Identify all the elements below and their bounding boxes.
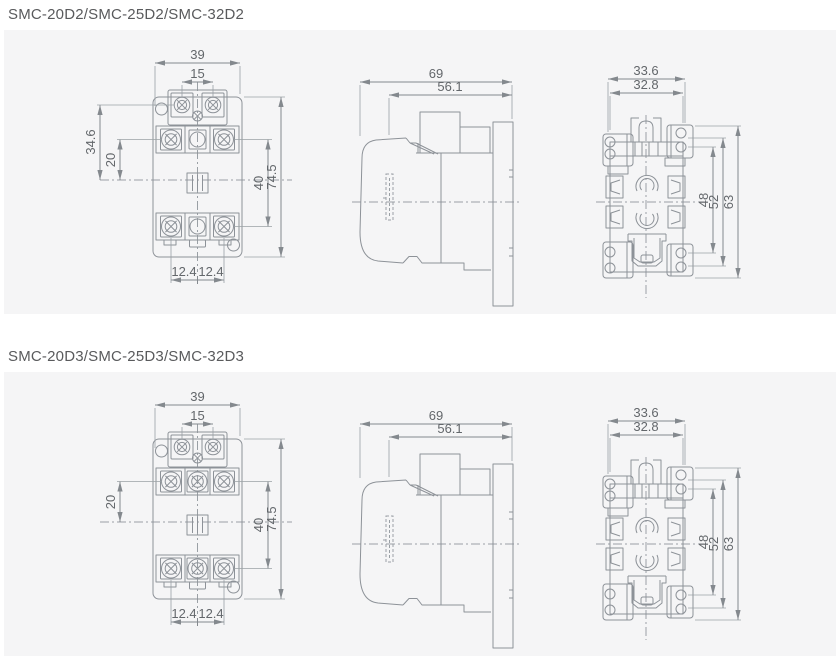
dim-overall-width: 39 xyxy=(190,47,204,62)
front-view-d2: 39 15 34.6 20 40 74.5 12.4 12.4 xyxy=(83,47,292,284)
side-view-d3: 69 56.1 xyxy=(352,408,522,648)
rear-view-d2: 33.6 32.8 48 52 63 xyxy=(596,63,741,298)
front-view-d3: 39 15 20 40 74.5 12.4 12.4 xyxy=(100,389,292,626)
dim-coil-pitch: 15 xyxy=(190,66,204,81)
dim-rear-overall-height: 63 xyxy=(721,537,736,551)
side-view-d2: 69 56.1 xyxy=(352,66,522,306)
dim-bottom-pitch-left: 12.4 xyxy=(171,264,196,279)
dim-bottom-pitch-left: 12.4 xyxy=(171,606,196,621)
page: SMC-20D2/SMC-25D2/SMC-32D2 39 15 34.6 20 xyxy=(0,0,840,658)
dim-overall-height: 74.5 xyxy=(264,506,279,531)
dim-body-depth: 56.1 xyxy=(437,421,462,436)
section-d3: SMC-20D3/SMC-25D3/SMC-32D3 39 15 20 40 7… xyxy=(0,348,840,656)
dim-mount-width-outer: 33.6 xyxy=(633,63,658,78)
dim-mount-width-outer: 33.6 xyxy=(633,405,658,420)
section-title-d2: SMC-20D2/SMC-25D2/SMC-32D2 xyxy=(8,6,840,24)
dim-body-depth: 56.1 xyxy=(437,79,462,94)
dim-overall-height: 74.5 xyxy=(264,164,279,189)
dim-main-center-height: 20 xyxy=(103,495,118,509)
dim-mount-width-inner: 32.8 xyxy=(633,419,658,434)
section-title-d3: SMC-20D3/SMC-25D3/SMC-32D3 xyxy=(8,348,840,365)
rear-view-d3: 33.6 32.8 48 52 63 xyxy=(596,405,741,640)
dim-bottom-pitch-right: 12.4 xyxy=(198,264,223,279)
dim-coil-center-height: 34.6 xyxy=(83,129,98,154)
dim-hole-spacing-outer: 52 xyxy=(706,195,721,209)
dim-bottom-pitch-right: 12.4 xyxy=(198,606,223,621)
dim-overall-width: 39 xyxy=(190,389,204,404)
dim-main-center-height: 20 xyxy=(103,153,118,167)
technical-drawing-d3: 39 15 20 40 74.5 12.4 12.4 69 56.1 xyxy=(4,372,836,656)
drawing-panel-d2: 39 15 34.6 20 40 74.5 12.4 12.4 69 56.1 xyxy=(4,30,836,314)
dim-hole-spacing-outer: 52 xyxy=(706,537,721,551)
dim-coil-pitch: 15 xyxy=(190,408,204,423)
dim-rear-overall-height: 63 xyxy=(721,195,736,209)
dim-mount-width-inner: 32.8 xyxy=(633,77,658,92)
technical-drawing-d2: 39 15 34.6 20 40 74.5 12.4 12.4 69 56.1 xyxy=(4,30,836,314)
drawing-panel-d3: 39 15 20 40 74.5 12.4 12.4 69 56.1 xyxy=(4,372,836,656)
section-d2: SMC-20D2/SMC-25D2/SMC-32D2 39 15 34.6 20 xyxy=(0,6,840,314)
